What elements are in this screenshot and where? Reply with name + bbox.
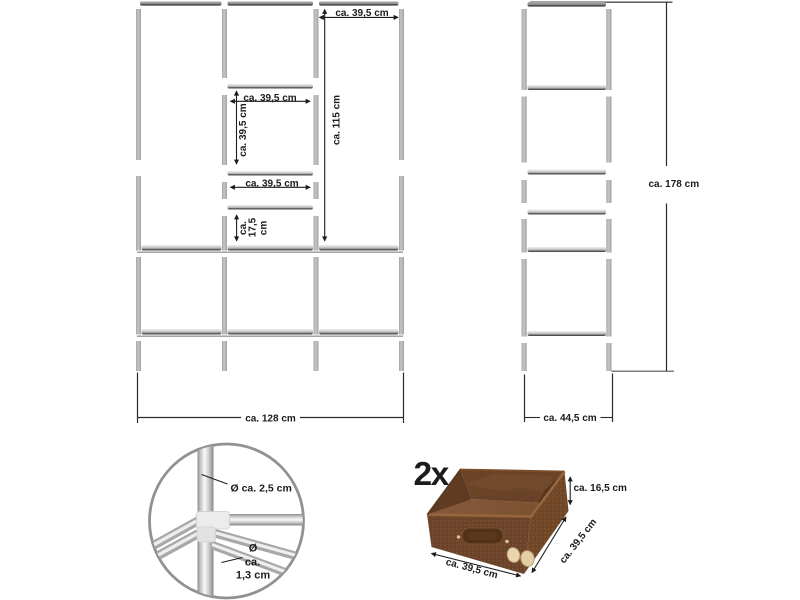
svg-text:cm: cm xyxy=(259,221,270,236)
svg-text:ca. 44,5 cm: ca. 44,5 cm xyxy=(543,413,596,424)
svg-text:2x: 2x xyxy=(414,456,450,493)
svg-text:ca.: ca. xyxy=(245,557,260,569)
svg-text:ca. 16,5 cm: ca. 16,5 cm xyxy=(574,483,627,494)
svg-text:ca. 39,5 cm: ca. 39,5 cm xyxy=(335,8,388,19)
svg-text:ca. 39,5 cm: ca. 39,5 cm xyxy=(245,179,298,190)
svg-text:ca. 39,5 cm: ca. 39,5 cm xyxy=(238,103,249,156)
svg-text:Ø: Ø xyxy=(249,543,258,555)
svg-text:Ø ca. 2,5 cm: Ø ca. 2,5 cm xyxy=(231,483,292,495)
svg-text:ca. 128 cm: ca. 128 cm xyxy=(245,414,296,425)
svg-text:ca. 115 cm: ca. 115 cm xyxy=(332,95,343,145)
svg-text:17,5: 17,5 xyxy=(247,217,258,237)
svg-text:ca. 39,5 cm: ca. 39,5 cm xyxy=(243,93,296,104)
svg-text:ca. 178 cm: ca. 178 cm xyxy=(649,179,700,190)
svg-text:1,3 cm: 1,3 cm xyxy=(236,570,270,582)
